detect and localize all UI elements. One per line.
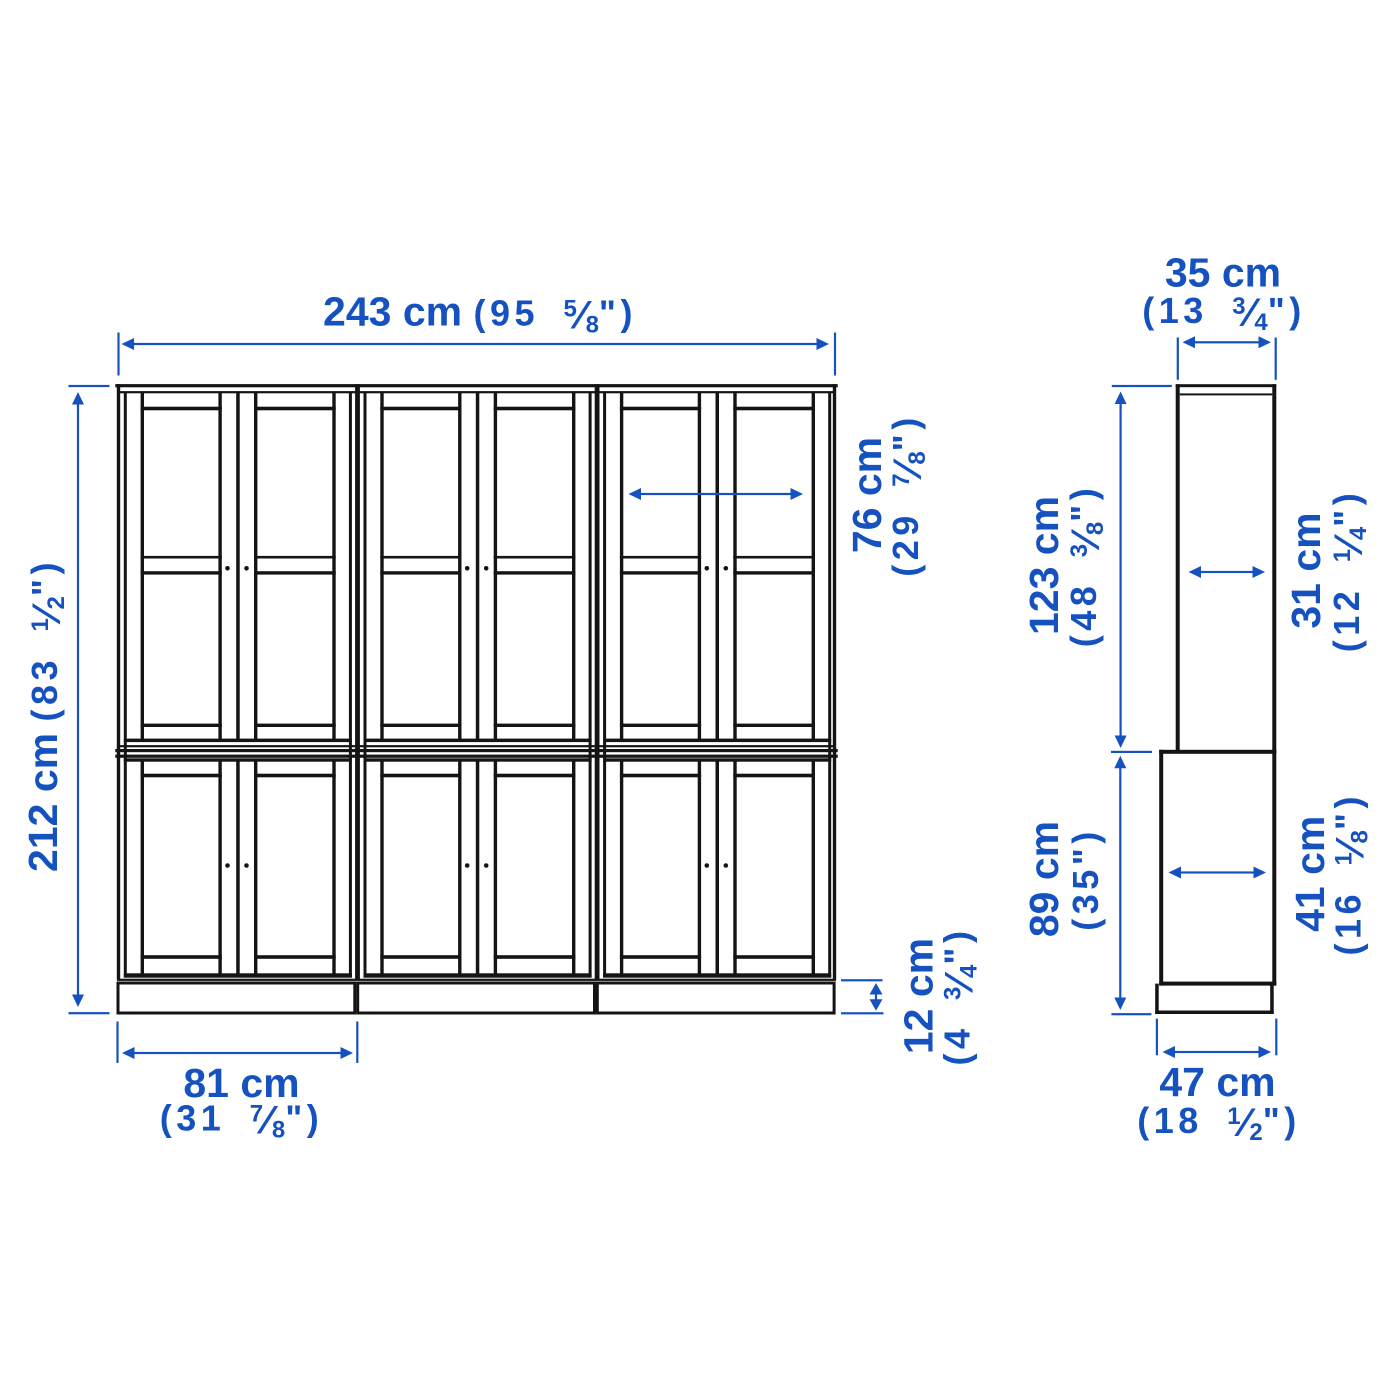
svg-text:(35"): (35") bbox=[1065, 827, 1106, 931]
svg-text:41 cm: 41 cm bbox=[1287, 816, 1333, 932]
svg-text:12 cm: 12 cm bbox=[895, 938, 941, 1054]
svg-text:47 cm: 47 cm bbox=[1159, 1059, 1275, 1105]
svg-text:31 cm: 31 cm bbox=[1283, 512, 1329, 628]
svg-text:89 cm: 89 cm bbox=[1021, 821, 1067, 937]
svg-text:35 cm: 35 cm bbox=[1165, 249, 1281, 295]
svg-text:123 cm: 123 cm bbox=[1021, 496, 1067, 635]
svg-text:76 cm: 76 cm bbox=[844, 437, 890, 553]
